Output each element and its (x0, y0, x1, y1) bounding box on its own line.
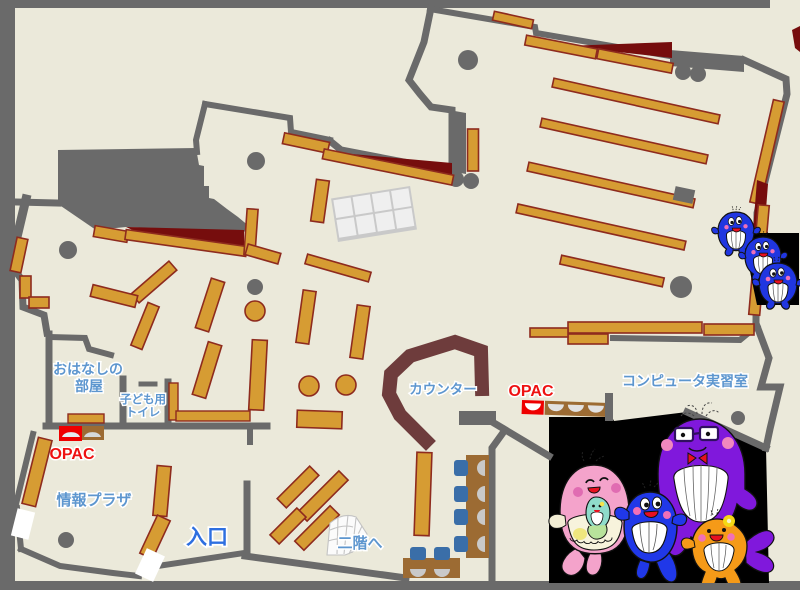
svg-text:入口: 入口 (186, 526, 228, 549)
svg-text:OPAC: OPAC (508, 383, 553, 400)
svg-text:おはなしの: おはなしの (53, 361, 123, 377)
svg-text:コンピュータ実習室: コンピュータ実習室 (622, 373, 748, 389)
svg-text:情報プラザ: 情報プラザ (56, 491, 131, 509)
svg-text:OPAC: OPAC (49, 446, 94, 463)
svg-text:トイレ: トイレ (126, 406, 161, 419)
svg-text:二階へ: 二階へ (337, 534, 382, 552)
svg-text:部屋: 部屋 (75, 378, 103, 394)
svg-text:子ども用: 子ども用 (120, 393, 166, 406)
svg-text:カウンター: カウンター (409, 382, 477, 397)
